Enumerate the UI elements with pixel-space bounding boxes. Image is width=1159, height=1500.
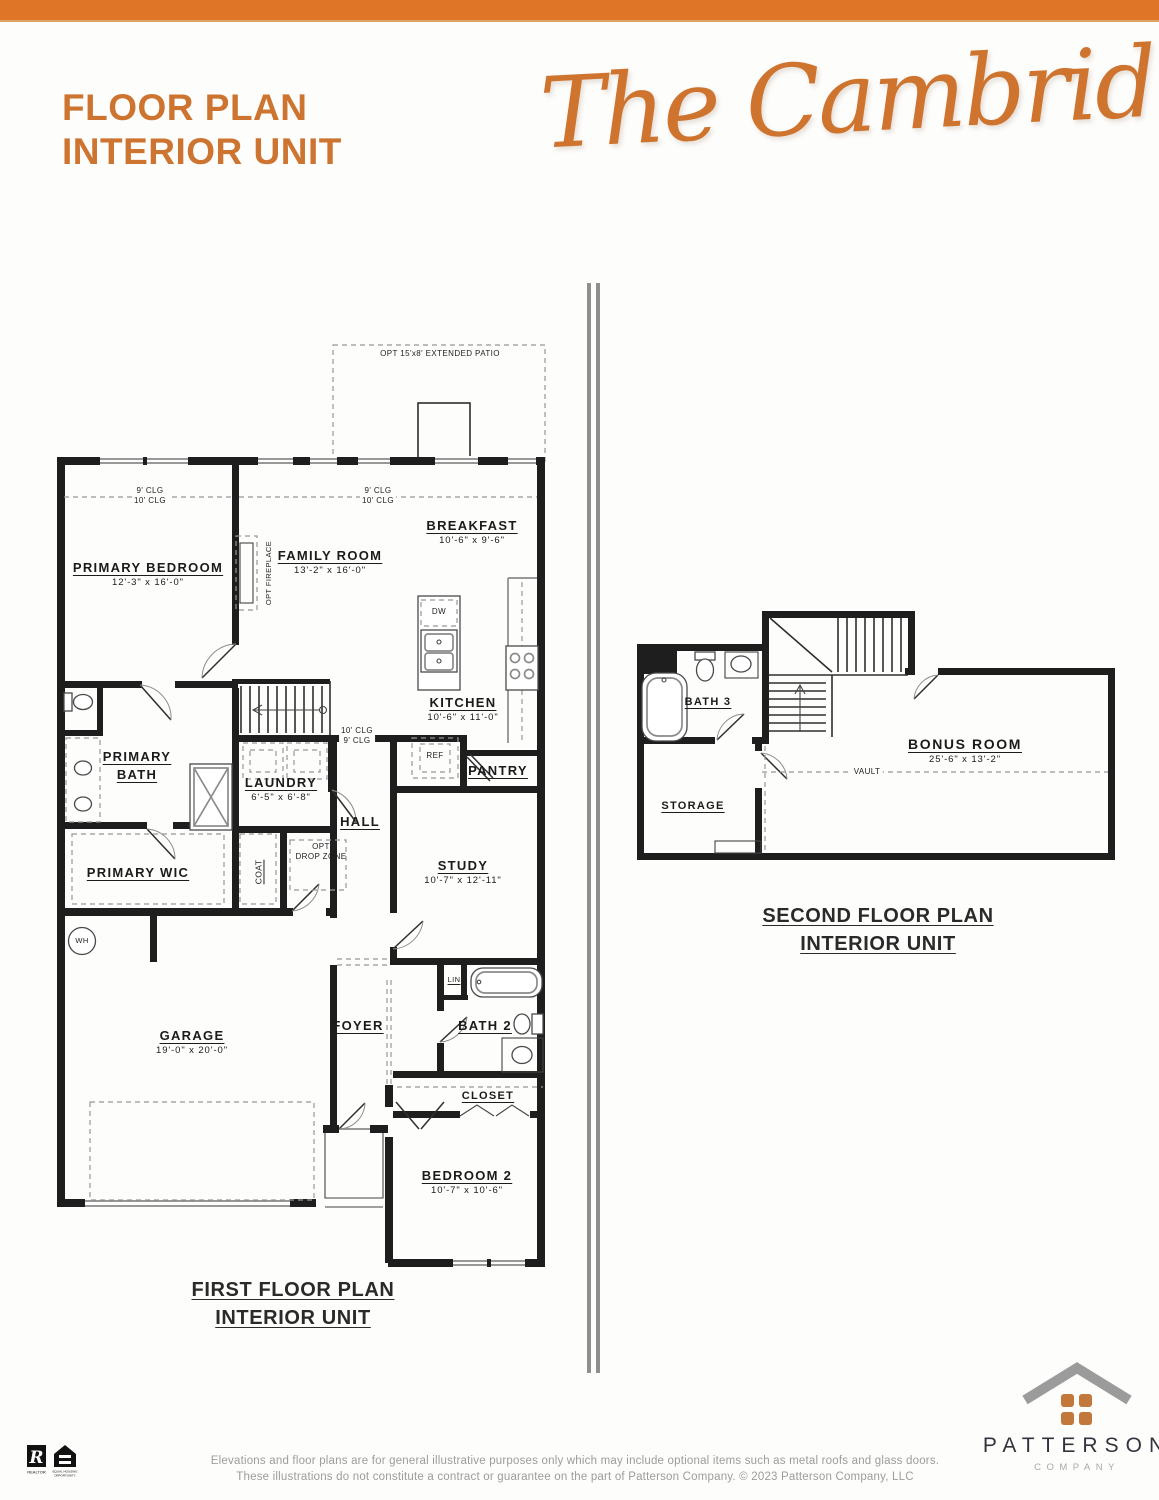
refrigerator-label: REF bbox=[424, 751, 445, 761]
room-label-study: STUDY 10'-7" x 12'-11" bbox=[424, 858, 501, 886]
brand-name: PATTERSON bbox=[982, 1434, 1159, 1458]
drop-zone-label: OPTDROP ZONE bbox=[293, 842, 348, 863]
ceiling-note-mid: 9' CLG10' CLG bbox=[360, 486, 396, 507]
disclaimer-line1: Elevations and floor plans are for gener… bbox=[190, 1453, 960, 1469]
room-label-bonus-room: BONUS ROOM 25'-6" x 13'-2" bbox=[908, 736, 1022, 765]
room-label-kitchen: KITCHEN 10'-6" x 11'-0" bbox=[427, 695, 498, 723]
dishwasher-label: DW bbox=[430, 607, 448, 617]
room-label-pantry: PANTRY bbox=[468, 763, 528, 778]
association-logos: R REALTOR EQUAL HOUSING OPPORTUNITY bbox=[26, 1442, 92, 1487]
linen-label: LIN bbox=[446, 975, 463, 985]
disclaimer-line2: These illustrations do not constitute a … bbox=[190, 1469, 960, 1485]
realtor-icon: R REALTOR bbox=[27, 1445, 46, 1475]
second-floor-caption: SECOND FLOOR PLAN INTERIOR UNIT bbox=[762, 902, 993, 958]
room-label-storage: STORAGE bbox=[661, 800, 724, 812]
patio-note: OPT 15'x8' EXTENDED PATIO bbox=[378, 349, 502, 359]
room-label-bath3: BATH 3 bbox=[685, 696, 732, 708]
plan-name-script: The Cambridge bbox=[537, 26, 1142, 171]
room-label-family-room: FAMILY ROOM 13'-2" x 16'-0" bbox=[278, 548, 383, 576]
first-floor-caption: FIRST FLOOR PLAN INTERIOR UNIT bbox=[192, 1276, 395, 1332]
svg-text:R: R bbox=[28, 1448, 43, 1468]
svg-text:REALTOR: REALTOR bbox=[27, 1470, 46, 1475]
room-label-foyer: FOYER bbox=[332, 1018, 383, 1033]
exterior-walls-2 bbox=[637, 611, 1115, 860]
room-label-breakfast: BREAKFAST 10'-6" x 9'-6" bbox=[426, 518, 517, 546]
vault-label: VAULT bbox=[852, 767, 883, 777]
patterson-house-icon bbox=[995, 1358, 1159, 1430]
patio-outline bbox=[333, 345, 545, 462]
room-label-hall: HALL bbox=[340, 814, 380, 829]
brand-subtitle: COMPANY bbox=[982, 1462, 1159, 1473]
washer-dryer-outline bbox=[243, 743, 327, 779]
fireplace-label: OPT FIREPLACE bbox=[264, 539, 274, 607]
room-label-closet: CLOSET bbox=[462, 1090, 514, 1102]
second-floor-plan: BATH 3 STORAGE BONUS ROOM 25'-6" x 13'-2… bbox=[620, 600, 1130, 980]
room-label-garage: GARAGE 19'-0" x 20'-0" bbox=[156, 1028, 228, 1056]
room-label-laundry: LAUNDRY 6'-5" x 6'-8" bbox=[245, 775, 317, 803]
storage-notch bbox=[715, 841, 761, 853]
header-accent-bar bbox=[0, 0, 1159, 22]
entry-stoop bbox=[325, 1133, 383, 1207]
staircase bbox=[241, 681, 330, 735]
disclaimer: Elevations and floor plans are for gener… bbox=[190, 1453, 960, 1485]
flyer-page: FLOOR PLAN INTERIOR UNIT The Cambridge bbox=[0, 0, 1159, 1500]
page-title-line1: FLOOR PLAN bbox=[62, 86, 342, 130]
vertical-divider-line-2 bbox=[596, 283, 600, 1373]
equal-housing-icon: EQUAL HOUSING OPPORTUNITY bbox=[53, 1445, 79, 1478]
staircase-2 bbox=[769, 618, 908, 737]
garage-door bbox=[85, 1102, 314, 1206]
room-label-primary-bedroom: PRIMARY BEDROOM 12'-3" x 16'-0" bbox=[73, 560, 223, 588]
water-heater-label: WH bbox=[73, 936, 90, 946]
page-title-line2: INTERIOR UNIT bbox=[62, 130, 342, 174]
ceiling-note-left: 9' CLG10' CLG bbox=[132, 486, 168, 507]
doors-2 bbox=[717, 675, 938, 779]
svg-text:OPPORTUNITY: OPPORTUNITY bbox=[54, 1474, 76, 1478]
patterson-logo: PATTERSON COMPANY bbox=[982, 1358, 1159, 1473]
ceiling-note-hall: 10' CLG9' CLG bbox=[339, 726, 375, 747]
room-label-primary-wic: PRIMARY WIC bbox=[87, 865, 189, 880]
page-title: FLOOR PLAN INTERIOR UNIT bbox=[62, 86, 342, 175]
first-floor-plan: OPT 15'x8' EXTENDED PATIO 9' CLG10' CLG … bbox=[40, 330, 560, 1340]
second-floor-drawing bbox=[620, 600, 1130, 890]
association-logos-svg: R REALTOR EQUAL HOUSING OPPORTUNITY bbox=[26, 1442, 92, 1482]
room-label-bath2: BATH 2 bbox=[458, 1018, 512, 1033]
vertical-divider-line-1 bbox=[587, 283, 591, 1373]
coat-label: COAT bbox=[253, 858, 264, 887]
room-label-bedroom2: BEDROOM 2 10'-7" x 10'-6" bbox=[422, 1168, 512, 1196]
fireplace-outline bbox=[236, 536, 257, 610]
room-label-primary-bath: PRIMARY BATH bbox=[94, 748, 180, 784]
